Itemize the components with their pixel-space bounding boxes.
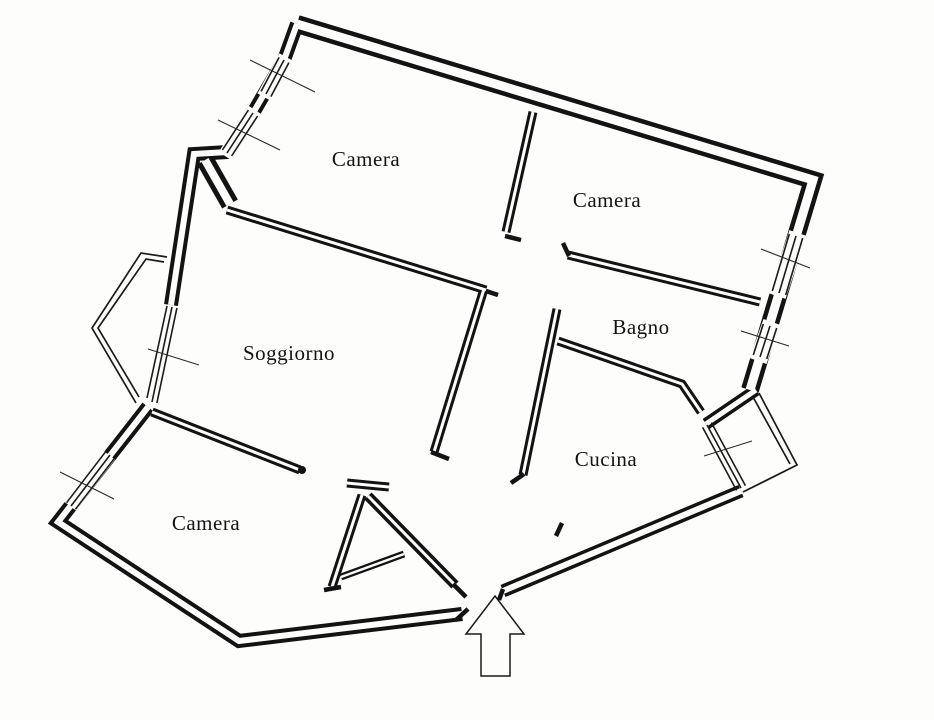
entrance-right-jamb bbox=[499, 589, 503, 600]
room-label-soggiorno: Soggiorno bbox=[243, 341, 335, 365]
vestibule-right-foot bbox=[453, 584, 466, 597]
room-label-bagno: Bagno bbox=[612, 315, 669, 339]
divider-foot bbox=[505, 236, 521, 240]
floorplan-canvas: CameraCameraSoggiornoBagnoCucinaCamera bbox=[0, 0, 934, 720]
wall-bagno-south bbox=[558, 341, 701, 412]
balcony-outline bbox=[743, 393, 797, 492]
room-label-cucina: Cucina bbox=[575, 447, 638, 471]
entrance-arrow bbox=[466, 596, 524, 676]
corridor-right-foot bbox=[511, 474, 524, 483]
vestibule-left-foot bbox=[324, 587, 341, 590]
room-labels: CameraCameraSoggiornoBagnoCucinaCamera bbox=[172, 147, 670, 535]
entrance-inner-stub bbox=[556, 523, 562, 536]
window-soggiorno-bay bbox=[147, 306, 177, 403]
floorplan-page: CameraCameraSoggiornoBagnoCucinaCamera bbox=[0, 0, 934, 720]
bagno-north-hook bbox=[563, 243, 569, 256]
room-label-camera-nw: Camera bbox=[332, 147, 400, 171]
camera-sw-wall-tip bbox=[298, 466, 306, 474]
room-label-camera-ne: Camera bbox=[573, 188, 641, 212]
corridor-left-foot bbox=[431, 452, 449, 459]
soggiorno-north-stub bbox=[486, 291, 498, 295]
window-balcony-door bbox=[703, 423, 746, 491]
room-label-camera-sw: Camera bbox=[172, 511, 240, 535]
